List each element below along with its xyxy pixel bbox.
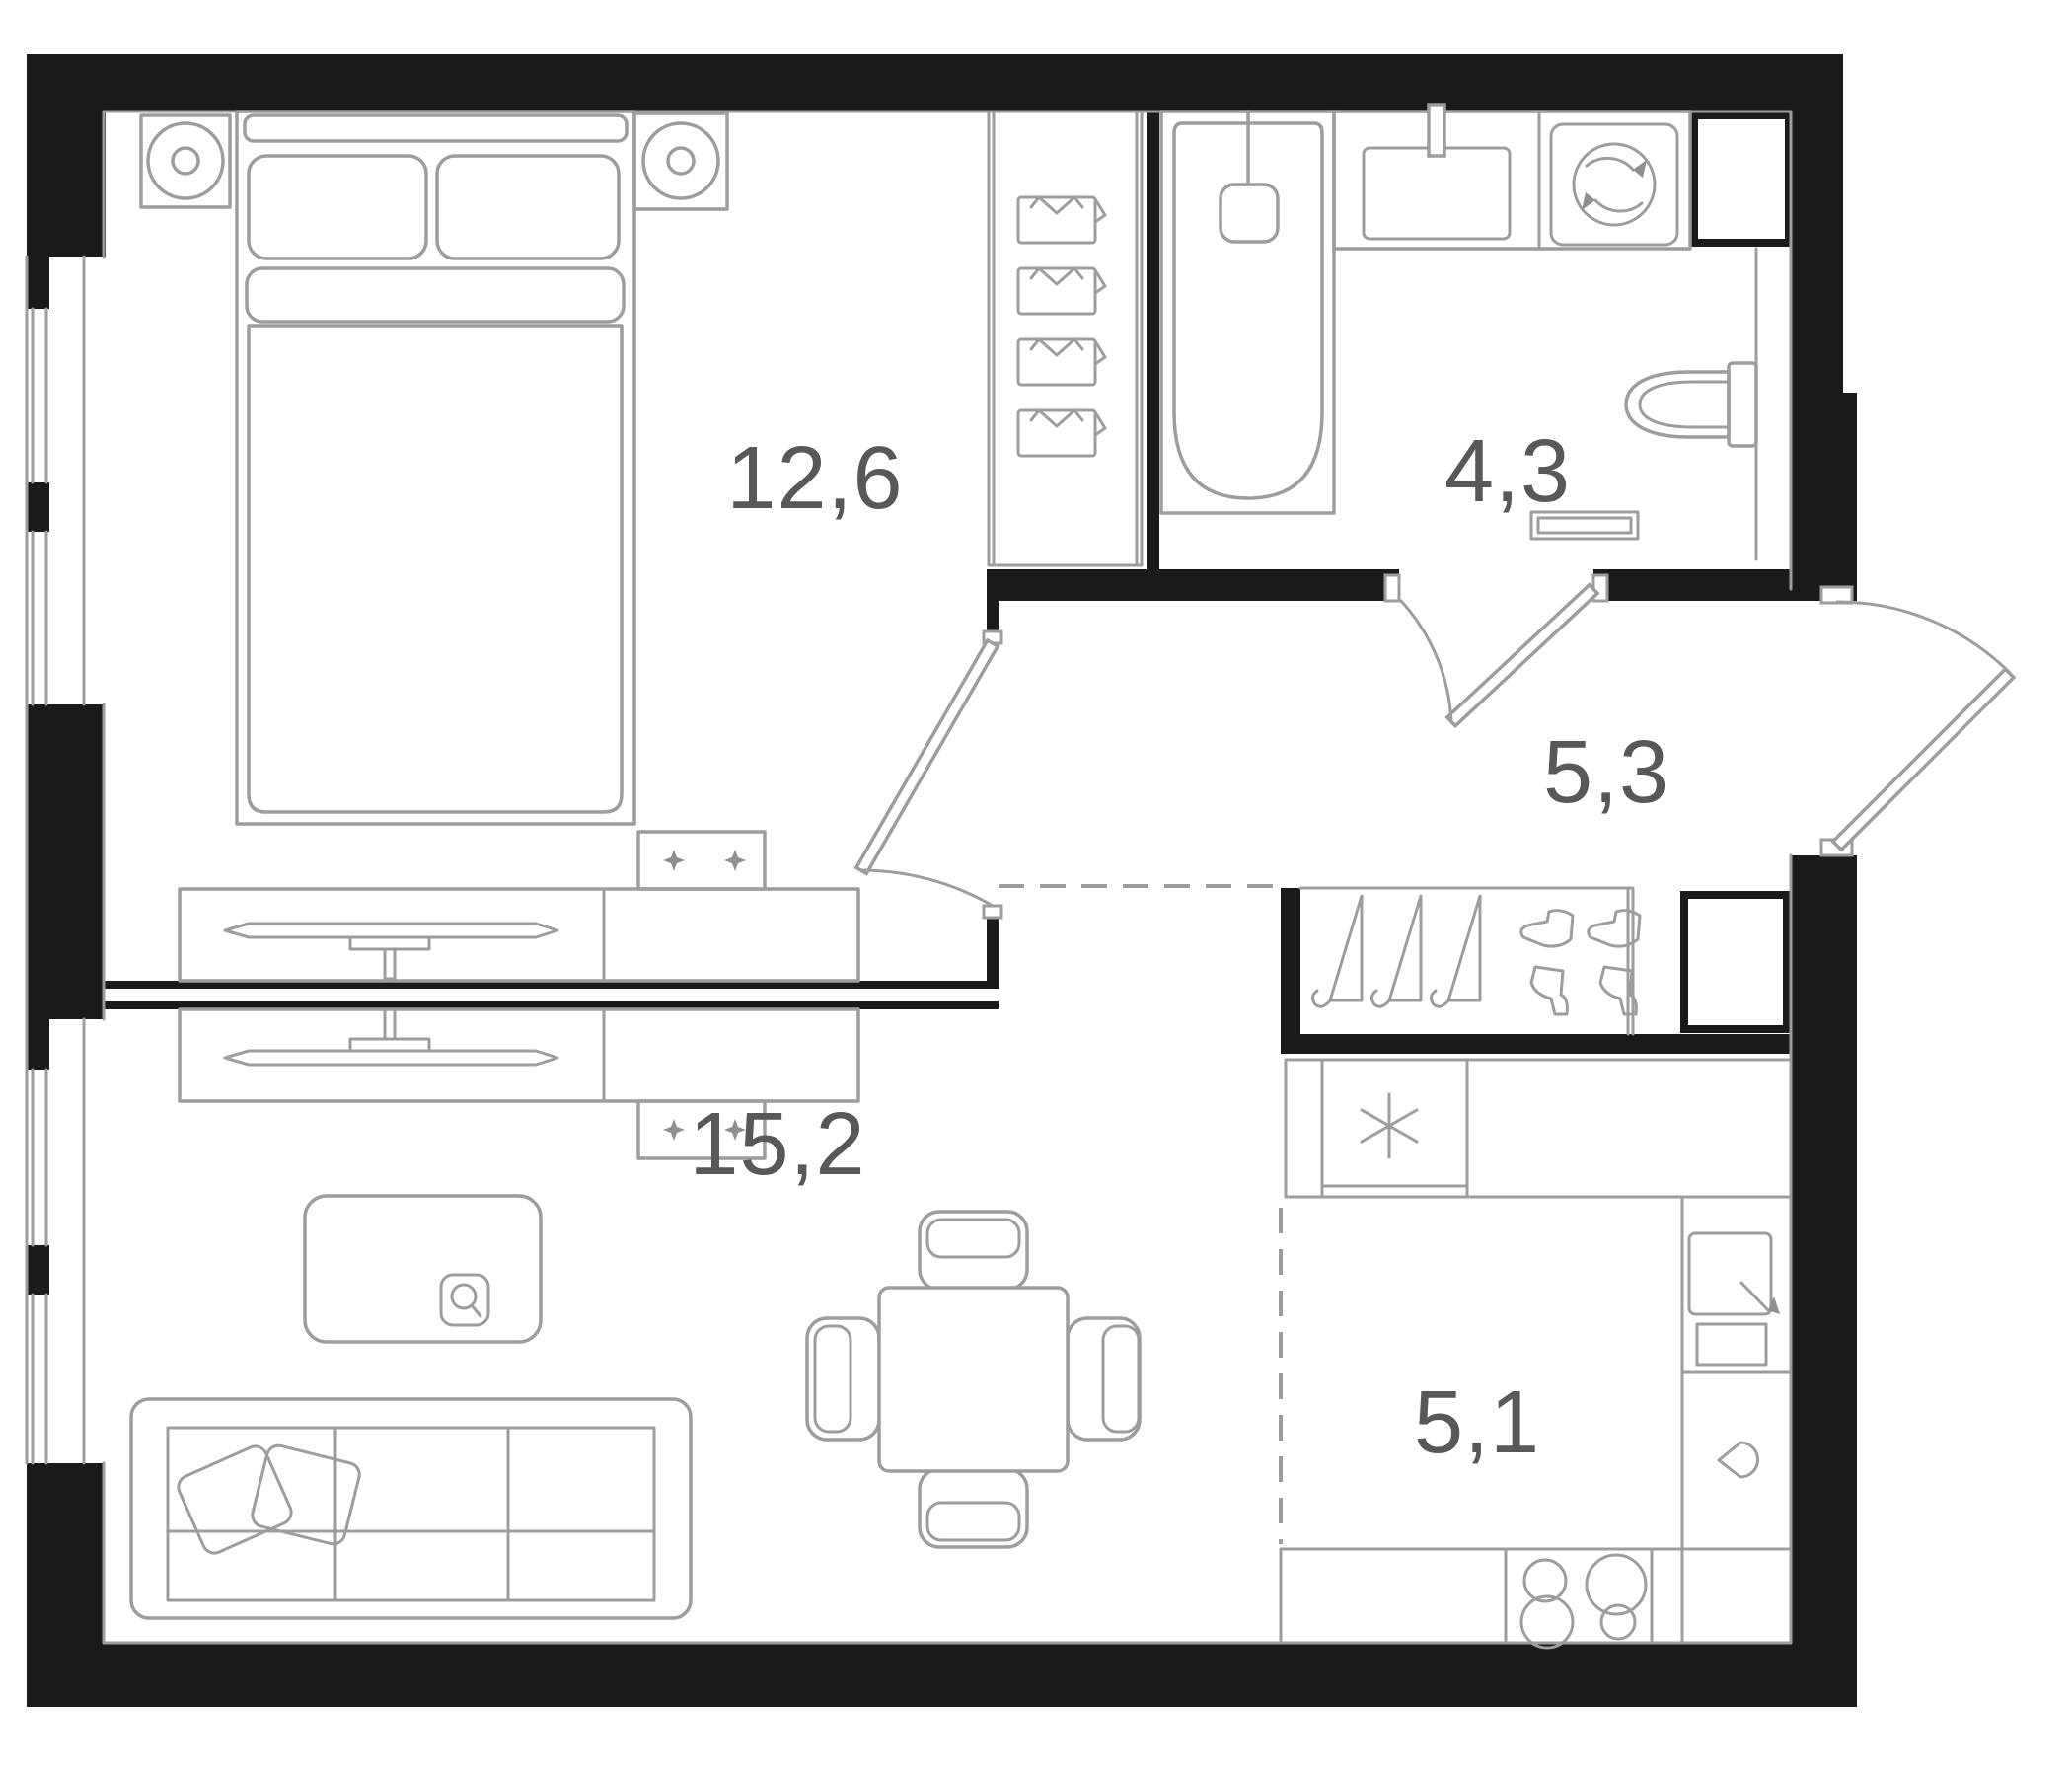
sparkle-icon xyxy=(724,850,746,871)
bathroom-area-label: 4,3 xyxy=(1444,422,1571,521)
lamp-icon xyxy=(643,123,718,198)
bathroom-door xyxy=(1385,575,1607,726)
door-swing-arc xyxy=(1401,601,1451,721)
wall-bottom xyxy=(27,1643,1857,1707)
tv-console-living xyxy=(180,1009,858,1101)
wall-bedroom-door-stub-top xyxy=(987,601,999,631)
hallway-area-label: 5,3 xyxy=(1543,723,1669,822)
bathtub xyxy=(1161,111,1334,513)
bedroom-wardrobe-shirts xyxy=(989,111,1142,565)
door-leaf xyxy=(1447,585,1597,726)
wall-bathroom-west xyxy=(1147,111,1159,569)
boots-icon xyxy=(1521,911,1640,1014)
bath-mixer xyxy=(1221,185,1278,242)
washing-machine xyxy=(1551,124,1677,245)
pillow-icon xyxy=(437,156,619,259)
shirt-icon xyxy=(1018,268,1105,314)
blanket-roll xyxy=(247,268,624,322)
nightstand-right xyxy=(634,113,727,209)
dining-table xyxy=(879,1288,1068,1471)
shirt-icon xyxy=(1018,339,1105,385)
wall-top xyxy=(27,54,1843,111)
sink-basin xyxy=(1364,148,1510,239)
rotate-arrow-icon xyxy=(1587,158,1633,170)
wall-south-of-bath-left xyxy=(987,569,1399,601)
bedroom-window-1 xyxy=(33,309,46,482)
toilet-cistern xyxy=(1729,363,1756,446)
shirt-icon xyxy=(1018,410,1105,456)
wall-right-mid xyxy=(1791,393,1857,599)
tv-console-bedroom xyxy=(180,889,858,981)
kitchen-counter-right-column xyxy=(1682,1197,1791,1641)
lamp-icon xyxy=(148,123,223,198)
coat-hanger-icon xyxy=(1431,896,1480,1006)
wall-left-b xyxy=(27,1019,49,1070)
nightstand-left xyxy=(141,115,230,207)
coat-hanger-icon xyxy=(1371,896,1421,1006)
living-room-area-label: 15,2 xyxy=(689,1095,865,1194)
wall-left-a xyxy=(27,257,49,309)
stove-burners xyxy=(1521,1555,1646,1648)
bathroom: 4,3 xyxy=(1161,105,1756,559)
door-leaf xyxy=(856,640,998,873)
pillow-icon xyxy=(249,156,426,259)
kitchen-counter-bottom-row xyxy=(1281,1549,1791,1648)
speaker-icon xyxy=(441,1275,488,1325)
chair xyxy=(807,1318,879,1440)
kitchen-sink xyxy=(1689,1233,1780,1365)
dishwasher-drop-icon xyxy=(1719,1443,1758,1477)
wall-right-upper xyxy=(1791,111,1843,402)
chair xyxy=(920,1212,1027,1290)
tv-icon xyxy=(225,924,557,937)
bedroom: 12,6 xyxy=(141,111,1142,824)
headboard xyxy=(245,115,627,141)
door-swing-arc xyxy=(1837,602,2010,673)
refrigerator xyxy=(1322,1094,1467,1186)
wall-left-pier xyxy=(27,704,104,1019)
bedroom-window-2 xyxy=(33,532,46,704)
wall-closet-horizontal xyxy=(1281,1034,1791,1054)
wall-south-of-bath-right xyxy=(1593,569,1857,601)
sparkle-icon xyxy=(663,850,685,871)
wall-corner-topleft xyxy=(27,54,106,257)
wall-closet-vertical xyxy=(1281,888,1300,1054)
chair xyxy=(1068,1318,1140,1440)
snowflake-icon xyxy=(1362,1094,1417,1157)
floor-plan-drawing: 12,6 xyxy=(0,0,2072,1776)
door-swing-arc xyxy=(861,870,993,906)
double-bed xyxy=(237,111,634,824)
living-room-window-2 xyxy=(33,1295,46,1463)
hallway: 5,3 xyxy=(1300,723,1669,1034)
sofa xyxy=(131,1399,691,1618)
wall-cabinet-bedroom xyxy=(638,832,765,889)
tap-icon xyxy=(1429,105,1444,156)
bedroom-area-label: 12,6 xyxy=(726,429,903,528)
shirt-icon xyxy=(1018,197,1105,243)
dining-set xyxy=(807,1212,1140,1547)
coat-hanger-icon xyxy=(1312,896,1362,1006)
door-leaf xyxy=(1833,669,2014,850)
living-room-window-1 xyxy=(33,1070,46,1245)
wall-right-lower xyxy=(1791,855,1857,1707)
mattress xyxy=(249,326,622,812)
sofa-pillow xyxy=(175,1443,362,1557)
floor-plan: 12,6 xyxy=(0,0,2072,1776)
wall-bedroom-door-stub-bottom xyxy=(987,918,999,981)
wall-left-mullion-b xyxy=(27,1245,49,1295)
toilet xyxy=(1626,363,1756,446)
sink-counter xyxy=(1334,105,1690,249)
sparkle-icon xyxy=(663,1119,685,1141)
wall-left-mullion-a xyxy=(27,482,49,532)
kitchen-area-label: 5,1 xyxy=(1414,1373,1540,1472)
bedroom-door xyxy=(856,631,1001,918)
chair xyxy=(920,1469,1027,1547)
tv-icon xyxy=(225,1051,557,1065)
entrance-door xyxy=(1821,587,2014,855)
coffee-table xyxy=(305,1196,541,1342)
hallway-closet xyxy=(1300,888,1640,1034)
rotate-arrow-icon xyxy=(1595,200,1642,211)
kitchen-counter-top-row xyxy=(1286,1060,1791,1197)
